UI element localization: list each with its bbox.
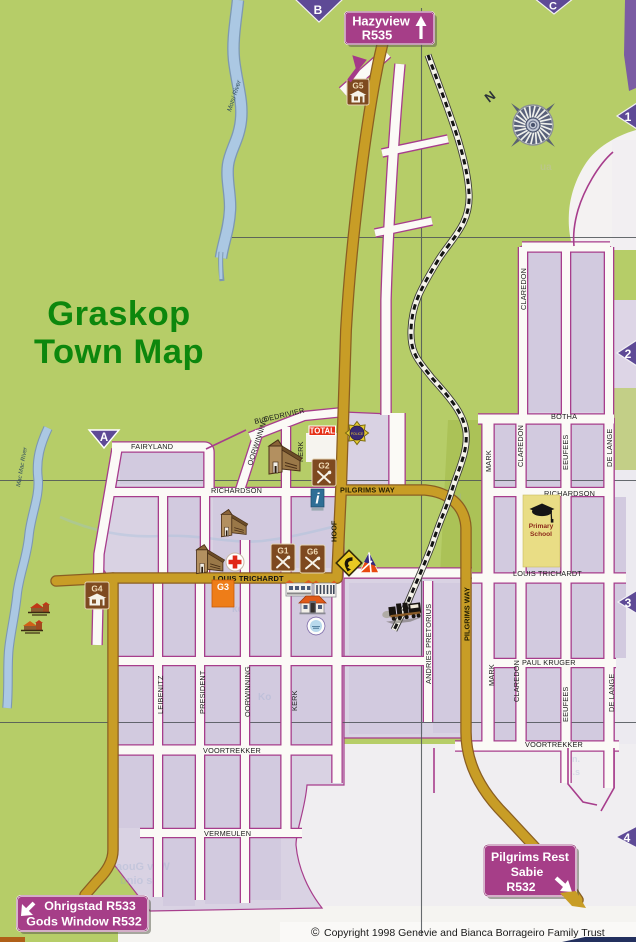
svg-text:VOORTREKKER: VOORTREKKER [525,740,583,749]
svg-text:G1: G1 [277,546,289,556]
svg-text:Copyright 1998 Genevie and Bi: Copyright 1998 Genevie and Bianca Borrag… [324,927,605,939]
svg-text:Ko: Ko [258,692,271,703]
svg-text:RICHARDSON: RICHARDSON [211,486,262,495]
svg-text:PAUL KRUGER: PAUL KRUGER [522,658,576,667]
svg-text:OORWINNING: OORWINNING [243,666,252,717]
svg-text:BOTHA: BOTHA [551,412,577,421]
svg-text:1: 1 [625,110,632,124]
svg-text:CLAREDON: CLAREDON [512,660,521,702]
svg-text:A: A [100,432,108,444]
svg-text:Sabie: Sabie [511,865,544,879]
svg-text:HOOF: HOOF [330,520,339,542]
svg-text:G5: G5 [352,81,364,91]
svg-text:LEIBENITZ: LEIBENITZ [156,675,165,714]
svg-text:PRESIDENT: PRESIDENT [198,670,207,714]
svg-text:G2: G2 [318,461,330,471]
svg-text:KERK: KERK [290,690,299,711]
svg-text:3: 3 [625,596,632,610]
svg-text:©: © [311,927,320,939]
svg-text:DE LANGE: DE LANGE [605,428,614,467]
svg-text:PILGRIMS WAY: PILGRIMS WAY [340,486,395,495]
svg-text:MARK: MARK [484,450,493,472]
svg-text:POLICE: POLICE [351,432,364,436]
svg-text:Gods Window R532: Gods Window R532 [26,915,142,929]
svg-text:VERMEULEN: VERMEULEN [204,829,251,838]
svg-text:2: 2 [625,347,632,361]
svg-text:CLAREDON: CLAREDON [516,425,525,467]
svg-text:G4: G4 [91,584,103,594]
svg-text:G3: G3 [217,582,229,592]
svg-text:Ohrigstad R533: Ohrigstad R533 [44,899,136,913]
svg-text:LOUIS TRICHARDT: LOUIS TRICHARDT [513,569,582,578]
svg-text:DE LANGE: DE LANGE [607,673,616,712]
svg-text:TOTAL: TOTAL [310,427,336,436]
svg-text:MARK: MARK [487,664,496,686]
svg-text:R535: R535 [362,28,393,43]
svg-text:FAIRYLAND: FAIRYLAND [131,442,173,451]
svg-text:Pilgrims Rest: Pilgrims Rest [491,850,569,864]
svg-text:PILGRIMS WAY: PILGRIMS WAY [463,587,472,641]
svg-text:EEUFEES: EEUFEES [561,435,570,470]
svg-text:School: School [530,531,552,538]
svg-text:C: C [549,1,557,13]
svg-text:CLAREDON: CLAREDON [519,268,528,310]
svg-text:B: B [314,3,323,17]
svg-text:EEUFEES: EEUFEES [561,687,570,722]
svg-text:Hazyview: Hazyview [352,14,410,29]
svg-text:4: 4 [624,831,631,845]
svg-text:ua: ua [540,162,552,173]
svg-text:VOORTREKKER: VOORTREKKER [203,746,261,755]
svg-text:Graskop: Graskop [47,295,190,333]
svg-text:ANDRIES PRETORIUS: ANDRIES PRETORIUS [424,604,433,684]
svg-text:G6: G6 [307,547,319,557]
svg-text:R532: R532 [506,880,535,894]
svg-text:Primary: Primary [529,523,554,530]
svg-text:Town Map: Town Map [34,333,204,371]
